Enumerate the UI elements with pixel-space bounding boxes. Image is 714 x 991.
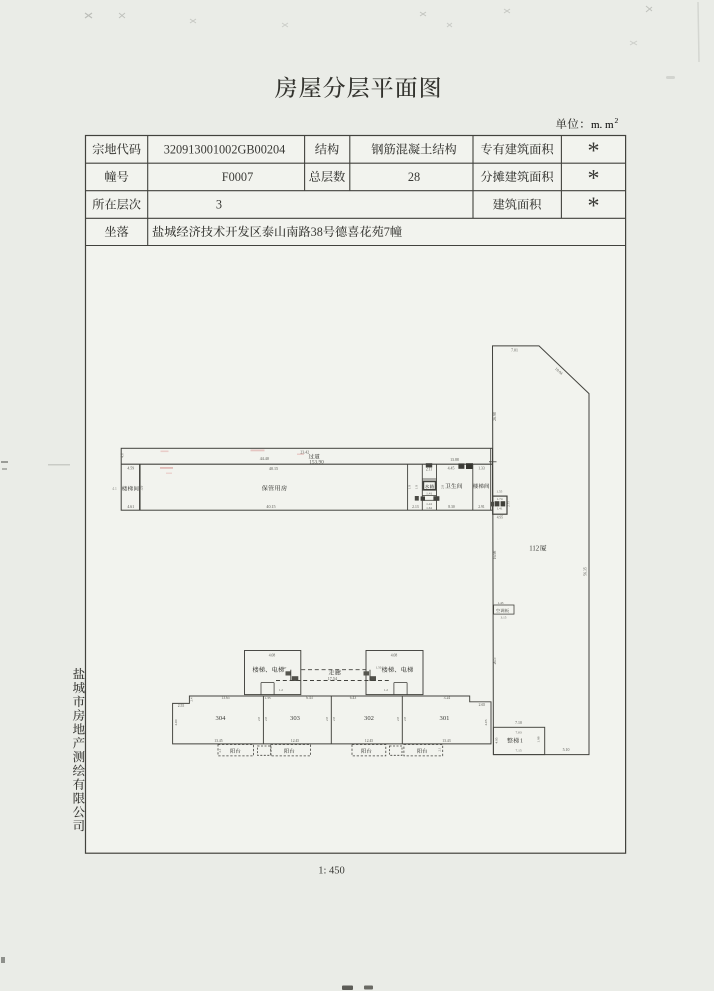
svg-text:*: * xyxy=(588,166,600,192)
svg-text:4.95: 4.95 xyxy=(497,515,503,519)
svg-text:m. m: m. m xyxy=(591,119,614,131)
svg-text:7.10: 7.10 xyxy=(515,721,522,725)
svg-text:F0007: F0007 xyxy=(222,170,253,184)
svg-text:3.9: 3.9 xyxy=(140,486,144,491)
svg-text:28: 28 xyxy=(408,170,420,184)
svg-text:2.8: 2.8 xyxy=(403,717,407,721)
svg-text:*: * xyxy=(588,194,600,220)
svg-text:2.65: 2.65 xyxy=(479,703,486,707)
svg-text:4.00: 4.00 xyxy=(174,719,178,725)
svg-text:1.33: 1.33 xyxy=(478,466,485,470)
svg-text:2.75: 2.75 xyxy=(507,501,511,507)
svg-text:1.2: 1.2 xyxy=(279,688,283,692)
svg-text:302: 302 xyxy=(364,715,374,722)
svg-text:7: 7 xyxy=(384,225,390,239)
svg-text:40.15: 40.15 xyxy=(269,466,278,471)
svg-text:1: 450: 1: 450 xyxy=(318,866,345,877)
svg-text:2.1: 2.1 xyxy=(438,747,442,751)
svg-text:2.91: 2.91 xyxy=(478,505,485,509)
svg-text:1.35: 1.35 xyxy=(264,696,270,700)
svg-text:*: * xyxy=(588,139,600,165)
svg-text:4.05: 4.05 xyxy=(484,719,488,725)
svg-text:320913001002GB00204: 320913001002GB00204 xyxy=(164,143,286,157)
svg-text:4.61: 4.61 xyxy=(127,505,134,509)
svg-text:1.9: 1.9 xyxy=(415,485,419,490)
svg-text:12.45: 12.45 xyxy=(291,739,299,743)
svg-text:13.88: 13.88 xyxy=(450,458,459,462)
svg-text:1.74: 1.74 xyxy=(497,497,503,501)
svg-text:4.08: 4.08 xyxy=(269,654,276,658)
svg-text:2.0: 2.0 xyxy=(441,485,445,490)
svg-text:1.50: 1.50 xyxy=(376,666,382,670)
svg-text:3.15: 3.15 xyxy=(501,616,507,620)
svg-text:2.8: 2.8 xyxy=(396,717,400,721)
svg-text:6.43: 6.43 xyxy=(306,696,313,700)
svg-text:112: 112 xyxy=(529,546,540,553)
svg-text:4.45: 4.45 xyxy=(448,466,455,470)
svg-text:2.55: 2.55 xyxy=(178,704,185,708)
svg-text:26.5: 26.5 xyxy=(493,658,497,665)
svg-text:44.40: 44.40 xyxy=(260,456,269,461)
svg-text:6.43: 6.43 xyxy=(350,696,357,700)
svg-text:7.03: 7.03 xyxy=(515,731,521,735)
svg-text:8.30: 8.30 xyxy=(448,505,455,509)
svg-text:40.15: 40.15 xyxy=(266,504,275,509)
svg-text:4.1: 4.1 xyxy=(112,487,117,491)
svg-text:56.35: 56.35 xyxy=(584,567,588,576)
svg-text:4.0: 4.0 xyxy=(121,453,125,458)
svg-text:13.45: 13.45 xyxy=(214,739,222,743)
svg-text:12.45: 12.45 xyxy=(365,739,373,743)
svg-text:16.98: 16.98 xyxy=(493,551,497,560)
svg-text:1.2: 1.2 xyxy=(384,688,388,692)
svg-text:4.59: 4.59 xyxy=(127,467,134,471)
svg-text:13.65: 13.65 xyxy=(221,696,229,700)
svg-text:2.8: 2.8 xyxy=(257,717,261,721)
svg-text:2.13: 2.13 xyxy=(412,505,419,509)
svg-text:2.8: 2.8 xyxy=(332,717,336,721)
svg-text:2.8: 2.8 xyxy=(264,717,268,721)
svg-text:4.08: 4.08 xyxy=(391,654,398,658)
svg-text:2.8: 2.8 xyxy=(325,717,329,721)
svg-text:1: 1 xyxy=(520,739,523,745)
svg-text:2: 2 xyxy=(615,116,619,125)
svg-text:17.54: 17.54 xyxy=(328,676,338,681)
svg-text:1.55: 1.55 xyxy=(496,490,502,494)
svg-text:1.41: 1.41 xyxy=(497,506,503,510)
svg-text:4.05: 4.05 xyxy=(494,737,498,743)
svg-text:7.15: 7.15 xyxy=(515,749,521,753)
svg-text:304: 304 xyxy=(216,715,227,722)
svg-text:38: 38 xyxy=(311,225,323,239)
svg-text:3: 3 xyxy=(216,198,222,212)
svg-text:2.4: 2.4 xyxy=(190,697,194,701)
svg-text:3.24: 3.24 xyxy=(444,696,451,700)
svg-text:2.11: 2.11 xyxy=(426,468,432,472)
svg-text:303: 303 xyxy=(290,715,301,722)
svg-text:2.1: 2.1 xyxy=(218,748,222,752)
svg-text:1.61: 1.61 xyxy=(426,506,432,510)
svg-text:1.43: 1.43 xyxy=(498,601,504,605)
svg-text:13.43: 13.43 xyxy=(442,739,450,743)
svg-text:5.10: 5.10 xyxy=(563,748,570,752)
svg-text:153.90: 153.90 xyxy=(309,459,324,465)
svg-text:7.01: 7.01 xyxy=(511,349,518,353)
svg-text:301: 301 xyxy=(440,715,450,722)
svg-text:1.88: 1.88 xyxy=(537,736,541,742)
svg-text:1.9: 1.9 xyxy=(408,485,412,490)
svg-text:1.47: 1.47 xyxy=(281,666,287,670)
svg-text:1.41: 1.41 xyxy=(426,491,432,495)
svg-text:26.98: 26.98 xyxy=(493,412,497,421)
